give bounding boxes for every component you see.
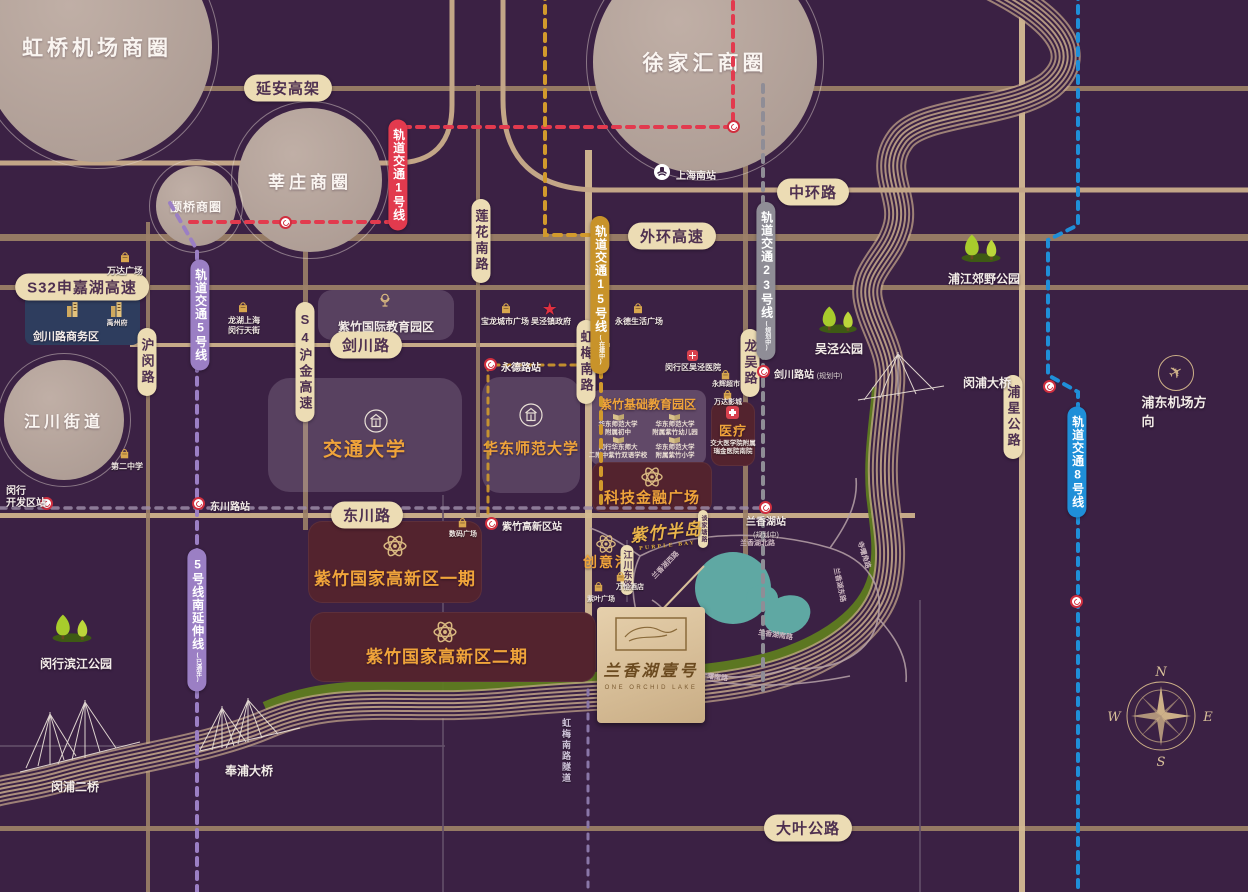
- line1-text: 轨道交通1号线: [392, 129, 406, 222]
- poi-jianchuan-biz-label: 剑川路商务区: [33, 328, 99, 344]
- circle-zhuanqiao-label: 颛桥商圈: [170, 198, 222, 215]
- station-lanxianghu-note: (规划中): [753, 532, 779, 539]
- circle-xinzhuang-label: 莘庄商圈: [268, 168, 352, 193]
- building-icon: [110, 302, 122, 318]
- road-lianhua: [476, 85, 480, 517]
- metro-station-icon-line1-north: [727, 120, 740, 133]
- trees-icon: [955, 228, 1007, 262]
- circle-hongqiao-airport: 虹桥机场商圈: [0, 0, 212, 162]
- road-label-daye: 大叶公路: [764, 815, 852, 842]
- circle-jiangchuan-street: 江川街道: [4, 360, 124, 480]
- line23-note: (规划中): [764, 321, 770, 351]
- road-humin: [146, 222, 150, 892]
- district-medical-label: 医疗: [719, 421, 747, 440]
- atom-icon: [432, 619, 458, 645]
- school-item: 闵行华东师大 二附中紫竹双语学校: [589, 444, 648, 461]
- shopping-bag-icon: [592, 580, 605, 593]
- metro-station-icon-line8-a: [1043, 380, 1056, 393]
- metro-station-icon-line8-b: [1070, 595, 1083, 608]
- road-s32-expwy: [0, 285, 1248, 290]
- bridge-minpu2-label: 闵浦二桥: [51, 778, 99, 795]
- atom-icon: [640, 465, 664, 489]
- metro-label-line5-extension: 5号线南延伸线(已通车): [187, 549, 206, 692]
- line5-text: 轨道交通5号线: [194, 269, 208, 362]
- district-hitech1-label: 紫竹国家高新区一期: [314, 565, 476, 590]
- poi-wanda-plaza-label: 万达广场: [107, 266, 143, 277]
- shopping-bag-icon: [631, 301, 645, 315]
- road-label-humin: 沪闵路: [138, 328, 157, 396]
- road-label-s32: S32申嘉湖高速: [15, 274, 149, 301]
- station-zizhu-label: 紫竹高新区站: [502, 518, 562, 533]
- university-seal-icon: [363, 408, 389, 434]
- book-icon: [668, 412, 681, 421]
- minpu-bridge: [858, 352, 944, 400]
- poi-longhu-label: 龙湖上海 闵行天街: [228, 316, 260, 336]
- district-edu-basic-label: 紫竹基础教育园区: [600, 396, 696, 413]
- shopping-bag-icon: [499, 301, 513, 315]
- project-name-en: ONE ORCHID LAKE: [605, 685, 698, 691]
- compass-s: S: [1157, 755, 1166, 770]
- road-label-dongchuan: 东川路: [331, 502, 403, 529]
- road-label-zhonghuan: 中环路: [777, 179, 849, 206]
- poi-ziye-plaza-label: 紫叶广场: [587, 596, 615, 605]
- metro-station-icon-lanxianghu: [759, 501, 772, 514]
- poi-shuma-label: 数码广场: [449, 531, 477, 540]
- school-bag-icon: [118, 447, 131, 460]
- metro-label-line23: 轨道交通23号线(规划中): [756, 202, 775, 360]
- project-logo-card: 兰香湖壹号 ONE ORCHID LAKE: [597, 607, 705, 723]
- line5s-text: 5号线南延伸线: [191, 558, 205, 651]
- government-star-icon: ★: [543, 300, 556, 318]
- shopping-bag-icon: [719, 368, 732, 381]
- circle-zhuanqiao: 颛桥商圈: [156, 166, 236, 246]
- shopping-bag-icon: [236, 300, 250, 314]
- road-label-lanxiang-east: 兰香湖东路: [831, 567, 848, 603]
- compass-w: W: [1107, 710, 1122, 725]
- bridge-fengpu-label: 奉浦大桥: [225, 762, 273, 779]
- location-map: 虹桥机场商圈 徐家汇商圈 莘庄商圈 颛桥商圈 江川街道 禹州府 剑川路商务区 紫…: [0, 0, 1248, 892]
- trees-icon: [813, 300, 863, 333]
- lake-outline-graphic: [615, 617, 687, 651]
- metro-station-icon-xinzhuang: [279, 216, 292, 229]
- district-huashida-label: 华东师范大学: [483, 438, 579, 459]
- road-label-waihuan: 外环高速: [628, 223, 716, 250]
- road-label-lianhua: 莲花南路: [472, 199, 491, 283]
- station-jianchuan-note: (规划中): [817, 373, 843, 380]
- poi-no2-school-label: 第二中学: [111, 462, 143, 472]
- purple-bay-brand-logo: 紫竹半岛PURPLE BAY: [629, 514, 704, 552]
- station-jianchuan-label: 剑川路站 (规划中): [774, 366, 842, 381]
- railway-station-icon: [653, 163, 671, 181]
- book-icon: [612, 412, 625, 421]
- station-yongde-label: 永德路站: [501, 359, 541, 374]
- shopping-bag-icon: [118, 250, 132, 264]
- fengpu-bridge: [195, 698, 300, 752]
- project-name-cn: 兰香湖壹号: [603, 657, 698, 681]
- metro-label-line5: 轨道交通5号线: [190, 260, 209, 371]
- poi-baolong-label: 宝龙城市广场: [481, 317, 529, 327]
- box-huashida-university: [482, 377, 580, 493]
- district-fintech-label: 科技金融广场: [604, 487, 700, 508]
- project-pointer-line: [660, 566, 704, 612]
- poi-wujing-gov-label: 吴泾镇政府: [531, 317, 571, 327]
- school-item: 华东师范大学 附属紫竹小学: [656, 444, 695, 461]
- building-icon: [66, 302, 78, 318]
- airplane-icon: ✈: [1158, 355, 1194, 391]
- school-item: 华东师范大学 附属初中: [599, 421, 638, 438]
- road-label-s4: S4沪金高速: [296, 302, 315, 422]
- road-minor-south: [0, 745, 445, 747]
- station-jianchuan-text: 剑川路站: [774, 370, 814, 381]
- line8-text: 轨道交通8号线: [1071, 416, 1085, 509]
- university-seal-icon: [518, 402, 544, 428]
- hospital-cross-icon: [687, 350, 698, 361]
- mic-icon: [378, 293, 392, 309]
- road-minor-v2: [919, 600, 921, 892]
- poi-yuzhoufu-label: 禹州府: [107, 320, 128, 329]
- poi-wanyi-hotel-label: 万怡酒店: [616, 584, 644, 593]
- park-wujing-label: 吴泾公园: [815, 340, 863, 357]
- pudong-airport-direction-label: 浦东机场方向: [1142, 392, 1213, 430]
- medical-cross-icon: [726, 406, 739, 419]
- road-daye: [0, 826, 1248, 831]
- compass-n: N: [1154, 665, 1167, 680]
- district-jiaotong-label: 交通大学: [323, 435, 407, 462]
- park-minhang-riverside-label: 闵行滨江公园: [40, 655, 112, 672]
- hongmei-tunnel-label: 虹梅南路隧道: [560, 718, 573, 784]
- poi-wujing-hospital-label: 闵行区吴泾医院: [665, 363, 721, 373]
- district-hospital-label: 交大医学院附属 瑞金医院南院: [710, 440, 756, 456]
- metro-station-icon-yongde: [484, 358, 497, 371]
- road-label-lanxiang-west: 兰香湖西路: [650, 549, 682, 581]
- metro-station-icon-dongchuan: [192, 497, 205, 510]
- line15-note: (在建中): [598, 335, 604, 365]
- road-label-yanan: 延安高架: [244, 75, 332, 102]
- metro-label-line15: 轨道交通15号线(在建中): [590, 216, 609, 374]
- lanxiang-lake: [695, 552, 816, 642]
- bridge-minpu-label: 闵浦大桥: [963, 374, 1011, 391]
- circle-hongqiao-label: 虹桥机场商圈: [22, 32, 172, 62]
- circle-xujiahui-label: 徐家汇商圈: [643, 47, 768, 77]
- hotel-icon: [614, 570, 627, 583]
- district-hitech2-label: 紫竹国家高新区二期: [366, 643, 528, 668]
- line5s-note: (已通车): [195, 653, 201, 683]
- station-lanxianghu-label: 兰香湖站(规划中): [746, 517, 786, 541]
- metro-station-icon-jianchuan: [757, 365, 770, 378]
- line23-text: 轨道交通23号线: [760, 211, 774, 319]
- road-label-sishu-east: 寺曙角路: [855, 540, 873, 570]
- metro-station-icon-zizhu: [485, 517, 498, 530]
- poi-yongde-plaza-label: 永德生活广场: [615, 317, 663, 327]
- minpu2-bridge: [20, 700, 140, 772]
- station-dongchuan-label: 东川路站: [210, 498, 250, 513]
- road-label-jianchuan: 剑川路: [330, 332, 402, 359]
- road-label-lanxiang-south: 兰香湖南路: [757, 628, 793, 643]
- atom-icon: [382, 533, 408, 559]
- metro-label-line1: 轨道交通1号线: [388, 120, 407, 231]
- poi-wanda-cinema-label: 万达影城: [714, 399, 742, 408]
- metro-label-line8: 轨道交通8号线: [1067, 407, 1086, 518]
- trees-icon: [46, 608, 98, 642]
- shopping-bag-icon: [456, 516, 469, 529]
- station-lanxianghu-text: 兰香湖站: [746, 517, 786, 528]
- circle-xujiahui: 徐家汇商圈: [593, 0, 817, 174]
- line15-text: 轨道交通15号线: [594, 225, 608, 333]
- circle-xinzhuang: 莘庄商圈: [238, 108, 382, 252]
- airplane-glyph: ✈: [1165, 361, 1187, 385]
- station-shanghai-south-label: 上海南站: [676, 167, 716, 182]
- compass-rose: N E S W: [1105, 660, 1217, 772]
- circle-jiangchuan-label: 江川街道: [24, 408, 104, 432]
- school-item: 华东师范大学 附属紫竹幼儿园: [652, 421, 698, 438]
- compass-e: E: [1202, 710, 1213, 725]
- park-pujiang-label: 浦江郊野公园: [948, 270, 1020, 287]
- station-minhang-kfq-label: 闵行 开发区站: [6, 486, 46, 510]
